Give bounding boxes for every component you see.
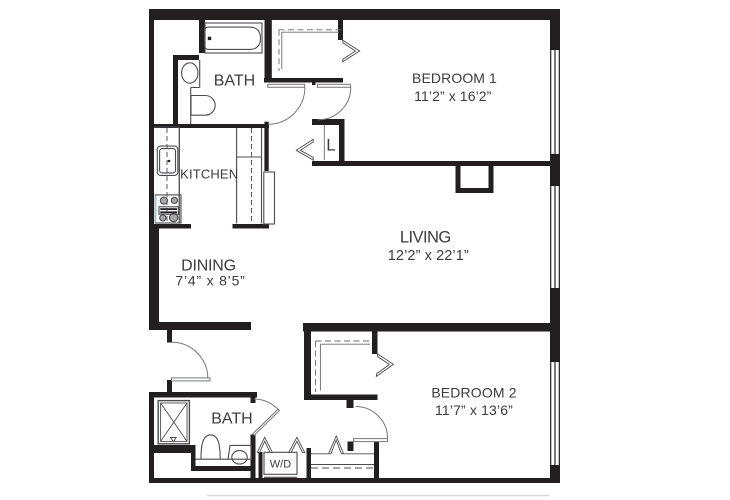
svg-text:BEDROOM 1: BEDROOM 1	[412, 70, 497, 86]
svg-text:BEDROOM 2: BEDROOM 2	[431, 384, 516, 400]
svg-text:LIVING: LIVING	[400, 229, 451, 247]
svg-text:L: L	[326, 136, 335, 155]
svg-text:11’7” x 13’6”: 11’7” x 13’6”	[435, 402, 513, 418]
svg-text:KITCHEN: KITCHEN	[180, 167, 238, 182]
svg-text:BATH: BATH	[214, 73, 255, 90]
svg-text:W/D: W/D	[270, 459, 291, 471]
svg-text:7’4” x 8’5”: 7’4” x 8’5”	[175, 272, 245, 288]
svg-text:BATH: BATH	[211, 410, 252, 427]
svg-text:11’2” x 16’2”: 11’2” x 16’2”	[414, 88, 492, 104]
svg-text:12’2” x 22’1”: 12’2” x 22’1”	[388, 248, 469, 264]
